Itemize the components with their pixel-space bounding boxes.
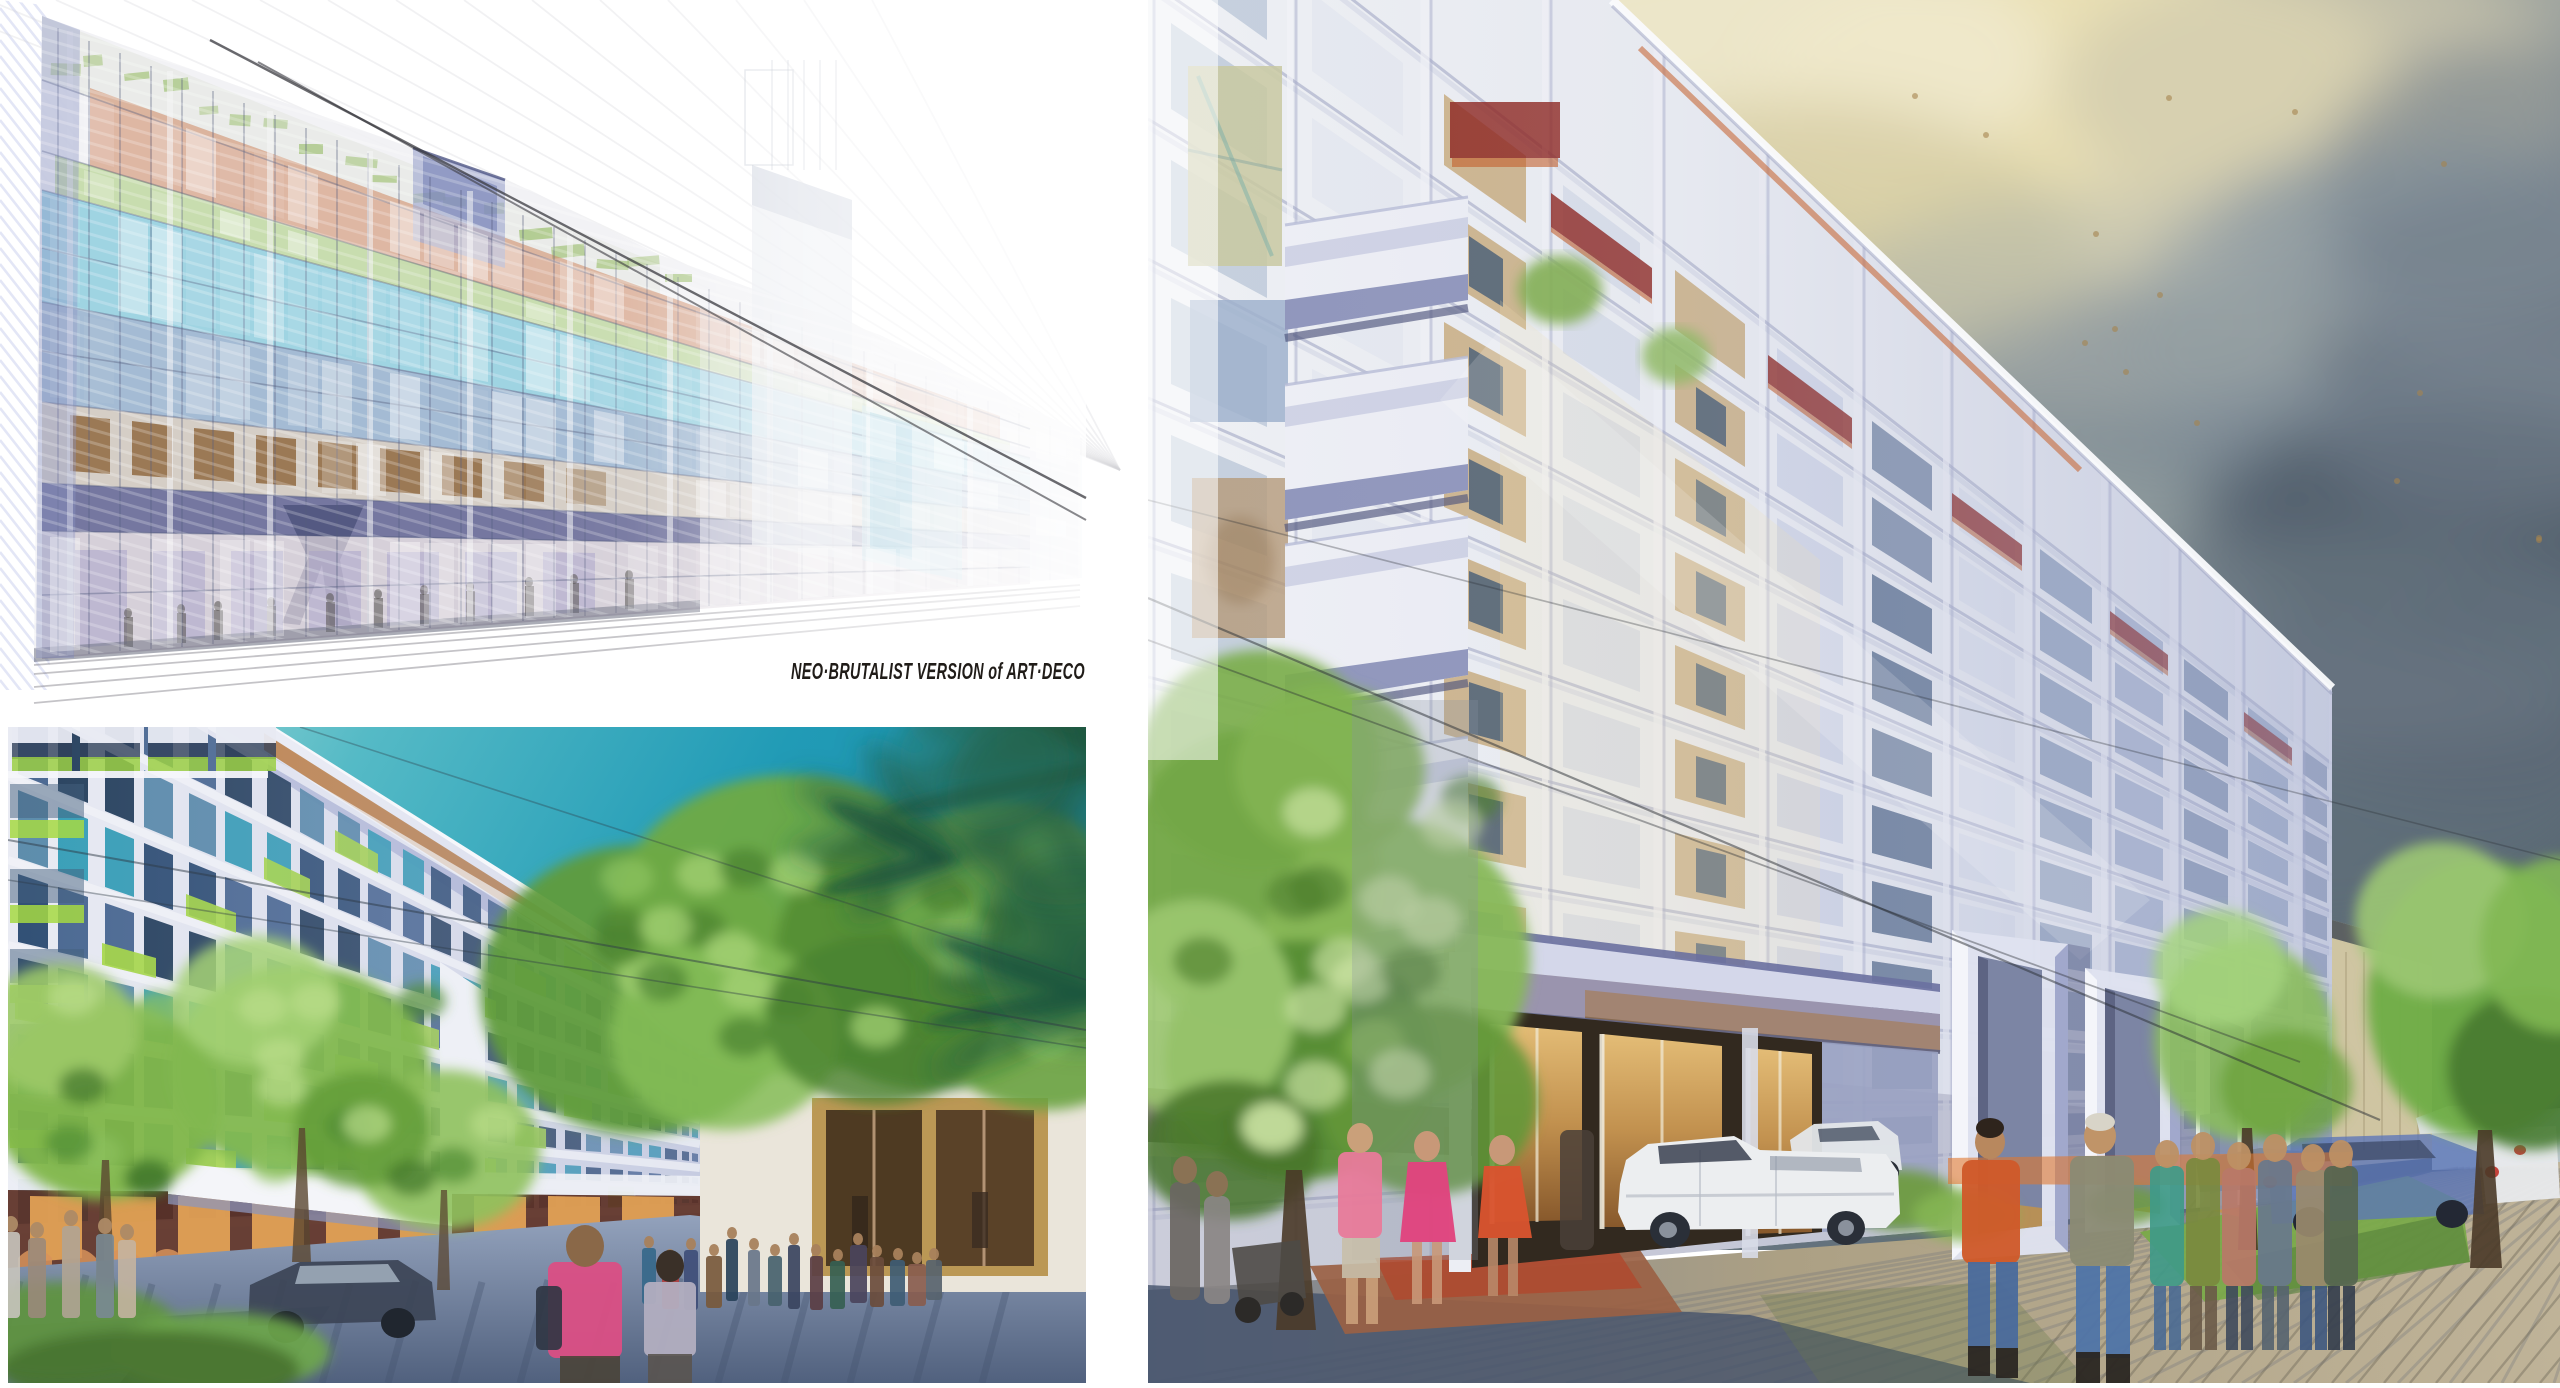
svg-text:NEO·BRUTALIST VERSION of ART·D: NEO·BRUTALIST VERSION of ART·DECO — [791, 658, 1085, 684]
